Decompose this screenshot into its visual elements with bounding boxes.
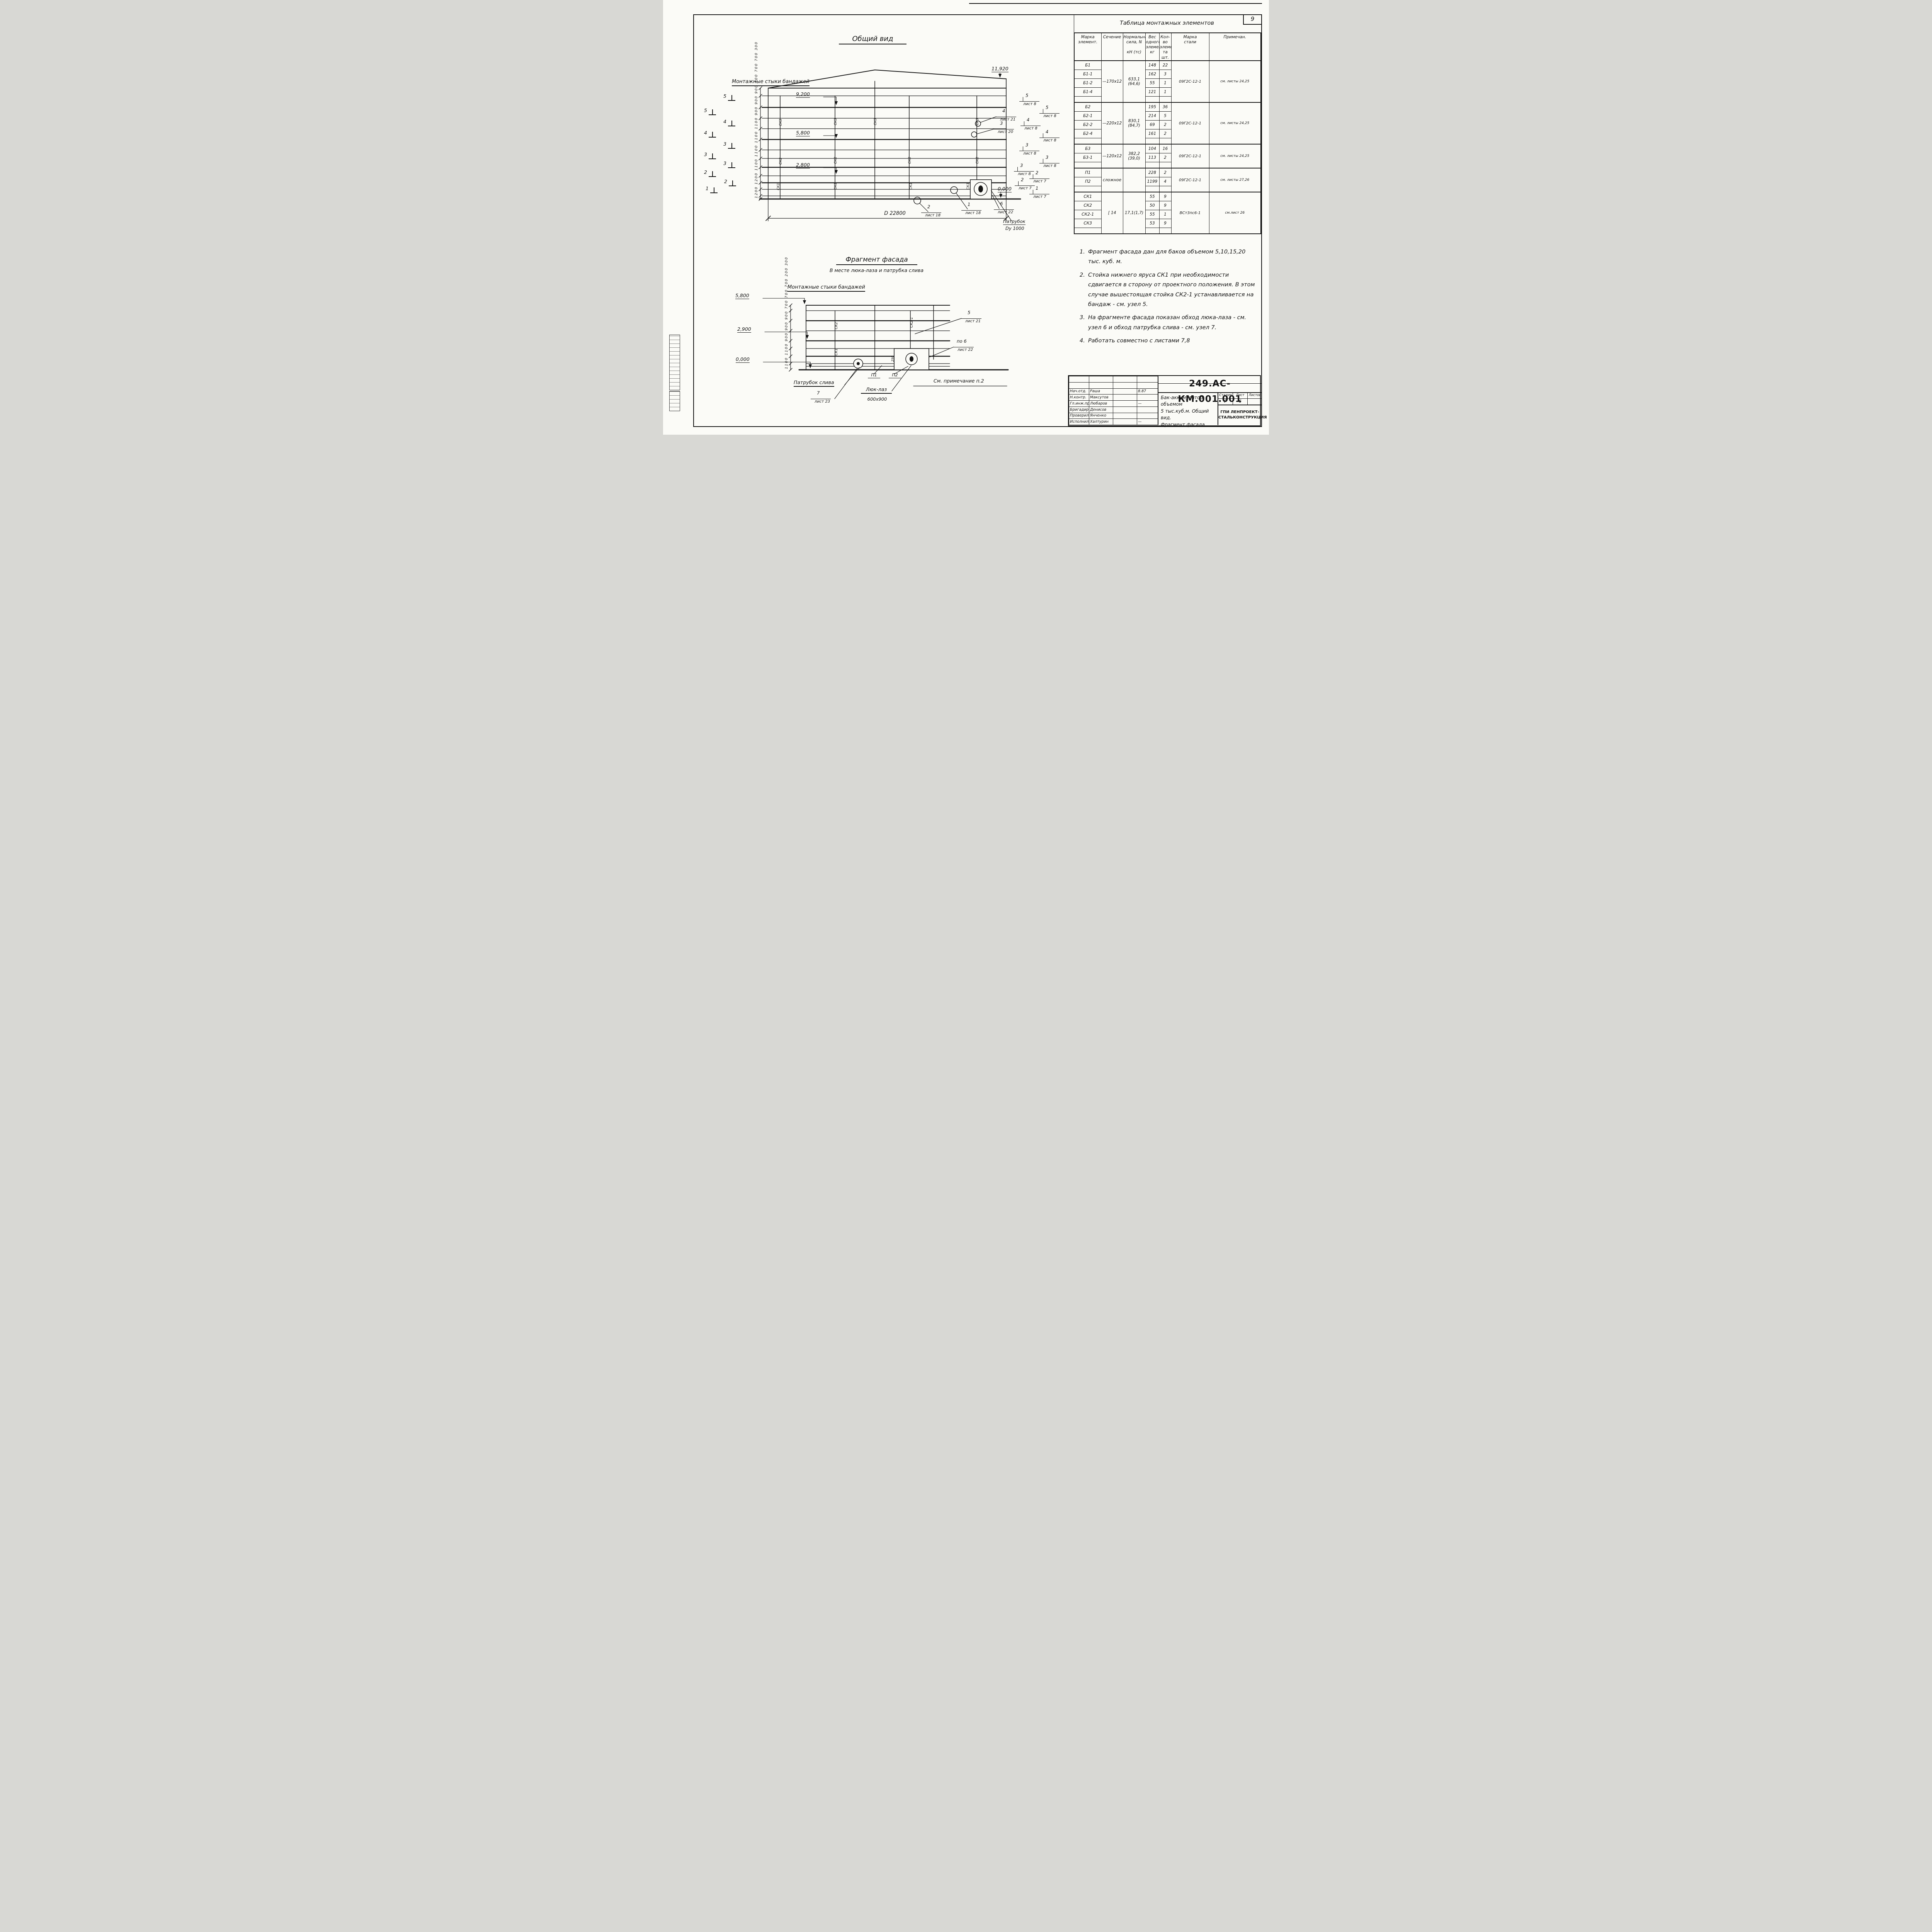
- table-cell: 121: [1145, 88, 1159, 97]
- section-mark: 4: [706, 132, 716, 139]
- table-cell: 633,1 (64,6): [1123, 61, 1145, 102]
- col-header-section: Сечение: [1101, 33, 1123, 61]
- table-cell: —170х12: [1101, 61, 1123, 102]
- note-item: 4.Работать совместно с листами 7,8: [1080, 336, 1260, 346]
- table-cell: 1: [1159, 210, 1171, 219]
- element-p1-label: П1: [868, 372, 880, 378]
- table-cell: 195: [1145, 102, 1159, 112]
- table-cell: Б3-1: [1074, 153, 1101, 162]
- patrubok-label: Патрубок: [1003, 219, 1026, 225]
- table-cell: 55: [1145, 210, 1159, 219]
- detail-callout: 7лист 23: [811, 394, 831, 404]
- stanchion-label: СК1: [835, 349, 838, 355]
- table-cell: 1: [1159, 79, 1171, 88]
- element-p2-label: П2: [889, 372, 901, 378]
- table-cell: Б1-2: [1074, 79, 1101, 88]
- detail-callout: по 6лист 22: [954, 342, 978, 352]
- stanchion-label: СК1: [834, 183, 838, 190]
- table-cell: Б2-1: [1074, 112, 1101, 121]
- person-name: Максутов: [1089, 395, 1113, 401]
- table-cell: 16: [1159, 144, 1171, 153]
- stanchion-label: СК3: [779, 119, 783, 126]
- detail-callout: 1лист 18: [961, 206, 981, 216]
- section-mark: 1: [708, 187, 718, 194]
- notes-list: 1.Фрагмент фасада дан для баков объемом …: [1080, 247, 1260, 349]
- col-header-qty: Кол-во элемен- та шт.: [1159, 33, 1171, 61]
- table-cell: 4: [1159, 177, 1171, 186]
- col-header-weight: Вес одного элемент. кг: [1145, 33, 1159, 61]
- stanchion-label: СК2: [779, 158, 783, 165]
- table-cell: СК2-1: [1074, 210, 1101, 219]
- elevation-11920: 11,920: [992, 66, 1009, 72]
- table-cell: Б2: [1074, 102, 1101, 112]
- fragment-title: Фрагмент фасада: [836, 256, 917, 265]
- vertical-dim-chain: 1200 1200 1100 1100 1100 1100 900 900 90…: [755, 87, 759, 198]
- stanchion-label: СК3: [874, 118, 878, 125]
- note-item: 2.Стойка нижнего яруса СК1 при необходим…: [1080, 270, 1260, 310]
- signature-table: Нач.отд.Раша8.87 Н.контр.Максутов Гл.инж…: [1069, 376, 1158, 425]
- table-cell: 5: [1159, 112, 1171, 121]
- joint-mark: 1лист 7: [1029, 189, 1049, 199]
- trim-line: [969, 3, 1262, 4]
- table-cell: Б1-4: [1074, 88, 1101, 97]
- date: [1137, 406, 1158, 413]
- signature: [1113, 388, 1137, 395]
- table-title: Таблица монтажных элементов: [1074, 20, 1260, 26]
- sheets-value: [1248, 399, 1262, 405]
- col-header-mark: Марка элемент.: [1074, 33, 1101, 61]
- person-name: Халтурин: [1089, 419, 1113, 425]
- manhole-size: 600х900: [861, 396, 893, 402]
- table-cell: 104: [1145, 144, 1159, 153]
- stanchion-label: СК2: [908, 157, 912, 164]
- elevation-5800: 5,800: [735, 293, 749, 299]
- sheet-value: 6: [1233, 399, 1248, 405]
- table-cell: 09Г2С-12-1: [1171, 102, 1209, 144]
- table-cell: 830,1 (84,7): [1123, 102, 1145, 144]
- table-cell: 382,2 (39,0): [1123, 144, 1145, 168]
- stage-header: Стадия: [1218, 392, 1233, 399]
- table-cell: [ 14: [1101, 192, 1123, 234]
- stanchion-label: СК3: [976, 118, 980, 125]
- table-cell: —120х12: [1101, 144, 1123, 168]
- table-cell: 22: [1159, 61, 1171, 70]
- joint-mark: 4лист 8: [1020, 121, 1041, 131]
- manhole-label: Люк-лаз: [861, 386, 892, 394]
- detail-callout: 6лист 22: [994, 205, 1014, 215]
- table-cell: П1: [1074, 168, 1101, 177]
- col-header-force: Нормальная сила, N кН (тс): [1123, 33, 1145, 61]
- detail-callout: 5лист 21: [961, 314, 981, 324]
- mounting-elements-table: Марка элемент. Сечение Нормальная сила, …: [1074, 32, 1261, 234]
- table-cell: СК3: [1074, 219, 1101, 228]
- joint-mark: 5лист 8: [1039, 109, 1060, 119]
- role: Бригадир: [1069, 406, 1089, 413]
- elevation-2800: 2,800: [796, 162, 810, 168]
- table-cell: 228: [1145, 168, 1159, 177]
- sheet-header: Лист: [1233, 392, 1248, 399]
- col-header-steel: Марка стали: [1171, 33, 1209, 61]
- stage-value: Р: [1218, 399, 1233, 405]
- drawing-description: Бак-аккумулятор объемом 5 тыс.куб.м. Общ…: [1158, 392, 1221, 427]
- note-item: 1.Фрагмент фасада дан для баков объемом …: [1080, 247, 1260, 267]
- signature: [1113, 419, 1137, 425]
- table-cell: Б2-2: [1074, 121, 1101, 129]
- joint-mark: 5лист 8: [1019, 97, 1039, 107]
- person-name: Денисов: [1089, 406, 1113, 413]
- table-cell: [1123, 168, 1145, 192]
- table-cell: Б1-1: [1074, 70, 1101, 79]
- bandage-joints-label: Монтажные стыки бандажей: [732, 79, 810, 86]
- table-cell: 09Г2С-12-1: [1171, 168, 1209, 192]
- role: Проверил: [1069, 413, 1089, 419]
- patrubok-size: Dy 1000: [1005, 226, 1024, 231]
- table-cell: Б2-4: [1074, 129, 1101, 138]
- table-cell: 1199: [1145, 177, 1159, 186]
- table-cell: 9: [1159, 201, 1171, 210]
- table-cell: см.лист 26: [1209, 192, 1261, 234]
- table-cell: Б1: [1074, 61, 1101, 70]
- general-view-title: Общий вид: [839, 35, 906, 44]
- table-cell: 161: [1145, 129, 1159, 138]
- stanchion-label: СК1: [909, 183, 913, 190]
- table-cell: 50: [1145, 201, 1159, 210]
- detail-callout: 4лист 21: [996, 112, 1016, 122]
- table-cell: 214: [1145, 112, 1159, 121]
- signature: [1113, 406, 1137, 413]
- stanchion-label: СК1: [966, 183, 970, 190]
- date: [1137, 413, 1158, 419]
- drain-pipe-label: Патрубок слива: [794, 379, 834, 387]
- role: Н.контр.: [1069, 395, 1089, 401]
- section-mark: 3: [706, 153, 716, 160]
- table-cell: см. листы 27,26: [1209, 168, 1261, 192]
- stanchion-label: СК2: [976, 157, 980, 164]
- elevation-0000: 0,000: [736, 356, 750, 363]
- elevation-2900: 2,900: [737, 326, 751, 333]
- table-cell: 2: [1159, 121, 1171, 129]
- sheets-header: Листов: [1248, 392, 1262, 399]
- table-cell: 17,1(1,7): [1123, 192, 1145, 234]
- drawing-sheet: 9: [663, 0, 1269, 435]
- joint-mark: 4лист 8: [1039, 133, 1060, 143]
- table-cell: 55: [1145, 79, 1159, 88]
- margin-stamp-box: [669, 391, 680, 411]
- table-cell: см. листы 24,25: [1209, 61, 1261, 102]
- date: 8.87: [1137, 388, 1158, 395]
- person-name: Любаров: [1089, 401, 1113, 407]
- table-cell: СК2: [1074, 201, 1101, 210]
- table-cell: сложное: [1101, 168, 1123, 192]
- section-mark: 5: [706, 109, 716, 116]
- table-cell: 36: [1159, 102, 1171, 112]
- signature: [1113, 395, 1137, 401]
- table-cell: 55: [1145, 192, 1159, 201]
- joint-mark: 3лист 8: [1019, 146, 1039, 156]
- table-cell: 1: [1159, 88, 1171, 97]
- stanchion-label: СК1: [777, 183, 781, 190]
- section-mark: 4: [726, 121, 736, 128]
- detail-callout: 2лист 18: [921, 208, 941, 218]
- table-cell: 53: [1145, 219, 1159, 228]
- see-note-label: См. примечание п.2: [934, 378, 984, 384]
- elevation-9200: 9,200: [796, 91, 810, 98]
- table-cell: 162: [1145, 70, 1159, 79]
- table-cell: 9: [1159, 219, 1171, 228]
- table-cell: 148: [1145, 61, 1159, 70]
- section-mark: 5: [726, 95, 736, 102]
- section-mark: 3: [726, 162, 736, 169]
- table-cell: ВСт3пс6-1: [1171, 192, 1209, 234]
- role: Гл.инж.пр: [1069, 401, 1089, 407]
- person-name: Раша: [1089, 388, 1113, 395]
- table-cell: 2: [1159, 153, 1171, 162]
- table-cell: П2: [1074, 177, 1101, 186]
- elevation-0000: 0,000: [998, 186, 1012, 192]
- margin-stamp-box: [669, 335, 680, 390]
- section-mark: 2: [726, 180, 736, 187]
- joint-mark: 3лист 8: [1039, 158, 1060, 168]
- stanchion-label: СК3: [834, 118, 838, 125]
- table-cell: 69: [1145, 121, 1159, 129]
- table-cell: 09Г2С-12-1: [1171, 61, 1209, 102]
- bandage-joints-label: Монтажные стыки бандажей: [787, 284, 865, 292]
- table-cell: 9: [1159, 192, 1171, 201]
- table-cell: 113: [1145, 153, 1159, 162]
- person-name: Янченко: [1089, 413, 1113, 419]
- stanchion-label: СК2-1: [910, 317, 914, 328]
- section-mark: 3: [726, 143, 736, 150]
- title-block: Нач.отд.Раша8.87 Н.контр.Максутов Гл.инж…: [1068, 375, 1261, 426]
- date: —: [1137, 401, 1158, 407]
- organization-name: ГПИ ЛЕНПРОЕКТ- СТАЛЬКОНСТРУКЦИЯ: [1218, 405, 1261, 425]
- signature: [1113, 413, 1137, 419]
- date: —: [1137, 419, 1158, 425]
- role: Исполнил: [1069, 419, 1089, 425]
- section-mark: 2: [706, 171, 716, 178]
- table-cell: 2: [1159, 168, 1171, 177]
- stanchion-label: СК2: [834, 157, 838, 164]
- table-cell: см. листы 24,25: [1209, 102, 1261, 144]
- note-item: 3.На фрагменте фасада показан обход люка…: [1080, 313, 1260, 333]
- vertical-dim-chain: 1100 1100 900 900 900 700 700 700 200 30…: [785, 304, 789, 369]
- table-cell: СК1: [1074, 192, 1101, 201]
- fragment-subtitle: В месте люка-лаза и патрубка слива: [820, 267, 934, 273]
- elevation-5800: 5,800: [796, 130, 810, 136]
- date: [1137, 395, 1158, 401]
- table-cell: 3: [1159, 70, 1171, 79]
- stanchion-label: СК2: [835, 322, 838, 329]
- col-header-note: Примечан.: [1209, 33, 1261, 61]
- document-number: 249.АС-КМ.001.001: [1158, 376, 1261, 393]
- table-cell: 2: [1159, 129, 1171, 138]
- signature: [1113, 401, 1137, 407]
- table-cell: см. листы 24,25: [1209, 144, 1261, 168]
- table-cell: —220х12: [1101, 102, 1123, 144]
- table-cell: Б3: [1074, 144, 1101, 153]
- detail-callout: 3лист 20: [994, 124, 1014, 134]
- dim-250: 250: [891, 356, 895, 362]
- role: Нач.отд.: [1069, 388, 1089, 395]
- table-cell: 09Г2С-12-1: [1171, 144, 1209, 168]
- diameter-dim: D 22800: [864, 211, 926, 216]
